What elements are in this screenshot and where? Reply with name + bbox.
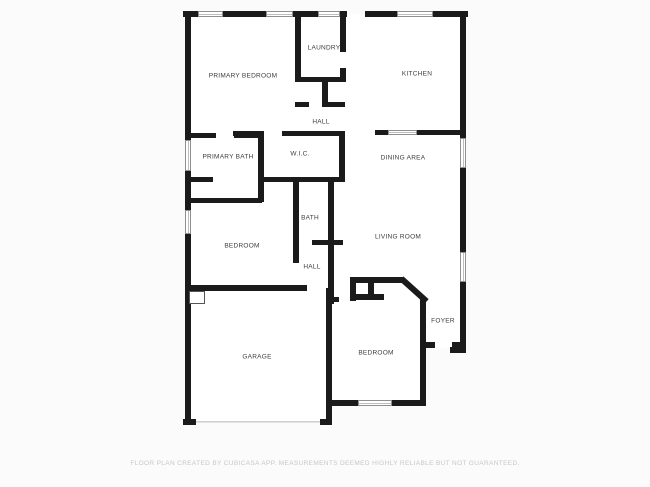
laundry-bottom-wall [298, 77, 343, 82]
garage-bottom-left-stub [183, 419, 196, 425]
bedroom2-closet-top [350, 277, 404, 283]
hall-closet-stub-left [295, 102, 309, 107]
laundry-left-wall [295, 16, 301, 82]
wic-right-wall [339, 131, 345, 182]
window-left-bedroom [185, 210, 191, 234]
window-mullion [398, 14, 432, 15]
window-right-dining [460, 138, 466, 168]
window-left-primary-bath [185, 140, 191, 171]
window-top-2 [266, 11, 293, 17]
garage-door-line [196, 421, 320, 423]
window-bedroom2-bottom [358, 400, 392, 406]
room-label-garage: GARAGE [242, 354, 271, 361]
hall-closet-stub-right [322, 102, 345, 107]
window-mullion [389, 132, 416, 133]
room-label-foyer: FOYER [431, 318, 455, 325]
dining-wall-right [417, 130, 466, 135]
room-label-hall: HALL [303, 264, 320, 271]
room-label-bedroom: BEDROOM [224, 243, 259, 250]
window-right-living [460, 252, 466, 282]
room-label-laundry: LAUNDRY [308, 45, 341, 52]
front-door-stub-right [452, 342, 466, 348]
front-door-stub-left [426, 342, 435, 348]
window-top-3 [318, 11, 340, 17]
room-label-bedroom: BEDROOM [358, 350, 393, 357]
window-mullion [319, 14, 339, 15]
room-label-bath: BATH [301, 215, 319, 222]
garage-entry-door-swing [189, 291, 205, 304]
bedroom2-closet-bottom [350, 294, 384, 300]
window-mullion [188, 141, 189, 170]
laundry-right-wall-upper [340, 16, 346, 52]
room-label-living-room: LIVING ROOM [375, 234, 421, 241]
bedroom-top-wall [191, 198, 262, 203]
window-mullion [359, 403, 391, 404]
window-mullion [267, 14, 292, 15]
room-label-dining-area: DINING AREA [381, 155, 426, 162]
window-top-4 [397, 11, 433, 17]
bath-bottom-stub [312, 240, 343, 245]
window-mullion [199, 14, 222, 15]
room-label-kitchen: KITCHEN [402, 71, 432, 78]
room-label-primary-bedroom: PRIMARY BEDROOM [209, 73, 278, 80]
window-mullion [463, 253, 464, 281]
dining-wall-left-stub [375, 130, 388, 135]
primary-bath-top-wall-left [191, 133, 216, 138]
disclaimer-text: FLOOR PLAN CREATED BY CUBICASA APP. MEAS… [0, 460, 650, 467]
garage-side-stub [332, 297, 339, 302]
bath-left-wall [293, 182, 299, 263]
bedroom2-bottom-wall-left [332, 400, 358, 406]
primary-bath-shower-wall [191, 177, 213, 182]
exterior-right-wall [460, 11, 466, 353]
room-label-hall: HALL [312, 119, 329, 126]
wic-left-wall [258, 131, 264, 202]
window-mullion [188, 211, 189, 233]
window-mullion [463, 139, 464, 167]
floorplan-canvas: PRIMARY BEDROOMLAUNDRYKITCHENHALLPRIMARY… [0, 0, 650, 487]
room-label-w-i-c: W.I.C. [290, 151, 309, 158]
room-label-primary-bath: PRIMARY BATH [202, 154, 253, 161]
window-dining-pass [388, 130, 417, 135]
wic-top-wall [282, 131, 345, 136]
window-top-1 [198, 11, 223, 17]
foyer-left-wall [420, 298, 426, 403]
